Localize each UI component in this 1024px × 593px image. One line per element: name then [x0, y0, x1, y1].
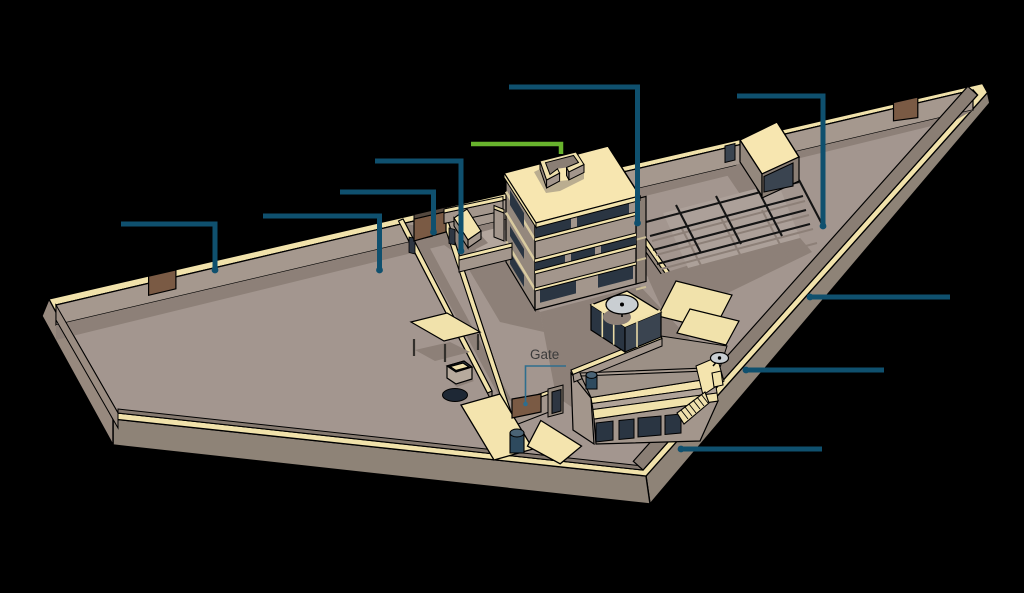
svg-text:Gate: Gate	[530, 347, 559, 362]
